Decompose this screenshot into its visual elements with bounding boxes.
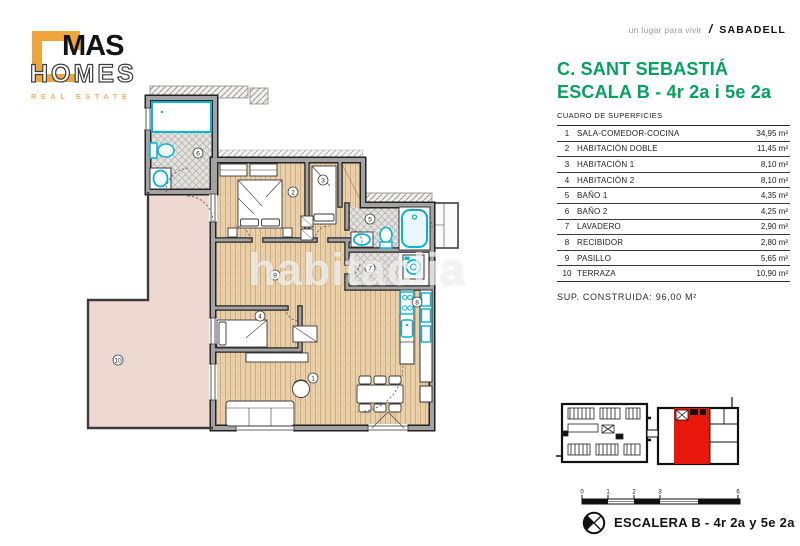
row-area: 11,45 m² <box>757 144 790 153</box>
svg-text:8: 8 <box>415 299 419 306</box>
row-name: HABITACIÓN 2 <box>577 176 761 185</box>
room-number-2: 2 <box>288 187 298 197</box>
row-name: HABITACIÓN DOBLE <box>577 144 757 153</box>
table-row: 8RECIBIDOR2,80 m² <box>557 235 790 251</box>
terrace-floor <box>88 192 213 428</box>
svg-text:3: 3 <box>321 177 325 184</box>
table-row: 9PASILLO5,65 m² <box>557 251 790 267</box>
svg-text:1: 1 <box>311 375 315 382</box>
row-area: 5,65 m² <box>761 254 790 263</box>
shower-tray <box>152 102 211 132</box>
washing-machine <box>403 255 424 279</box>
svg-text:4: 4 <box>258 313 262 320</box>
highlighted-unit <box>674 408 710 464</box>
table-row: 4HABITACIÓN 28,10 m² <box>557 173 790 189</box>
row-num: 6 <box>557 207 577 216</box>
row-num: 1 <box>557 129 577 138</box>
row-name: LAVADERO <box>577 222 761 231</box>
scale-bar: 0 1 2 3 6 <box>580 487 746 507</box>
compass-icon <box>581 510 607 536</box>
row-name: TERRAZA <box>577 269 756 278</box>
row-area: 8,10 m² <box>761 160 790 169</box>
row-area: 10,90 m² <box>756 269 790 278</box>
bathtub <box>399 207 430 250</box>
room-number-4: 4 <box>255 311 265 321</box>
row-area: 34,95 m² <box>756 129 790 138</box>
toilet-bath1 <box>380 228 392 249</box>
svg-text:2: 2 <box>632 490 636 496</box>
room-number-3: 3 <box>318 175 328 185</box>
room-number-10: 10 <box>113 355 123 365</box>
built-surface-total: SUP. CONSTRUIDA: 96,00 M² <box>557 292 790 302</box>
room-number-8: 8 <box>412 297 422 307</box>
row-area: 4,35 m² <box>761 191 790 200</box>
room-number-1: 1 <box>308 373 318 383</box>
room-number-7: 7 <box>365 263 375 273</box>
row-area: 2,90 m² <box>761 222 790 231</box>
row-num: 8 <box>557 238 577 247</box>
table-row: 7LAVADERO2,90 m² <box>557 220 790 236</box>
row-name: SALA-COMEDOR-COCINA <box>577 129 756 138</box>
row-name: BAÑO 1 <box>577 191 761 200</box>
svg-text:5: 5 <box>368 216 372 223</box>
surfaces-table: 1SALA-COMEDOR-COCINA34,95 m² 2HABITACIÓN… <box>557 125 790 282</box>
table-row: 10TERRAZA10,90 m² <box>557 266 790 281</box>
row-num: 9 <box>557 254 577 263</box>
row-area: 2,80 m² <box>761 238 790 247</box>
row-name: HABITACIÓN 1 <box>577 160 761 169</box>
row-num: 10 <box>557 269 577 278</box>
surfaces-table-heading: CUADRO DE SUPERFICIES <box>557 111 790 120</box>
svg-text:6: 6 <box>736 490 740 496</box>
svg-text:9: 9 <box>273 272 277 279</box>
svg-text:6: 6 <box>196 150 200 157</box>
row-num: 3 <box>557 160 577 169</box>
table-row: 2HABITACIÓN DOBLE11,45 m² <box>557 142 790 158</box>
sink-bath1 <box>351 232 373 247</box>
row-name: RECIBIDOR <box>577 238 761 247</box>
header-separator: / <box>709 22 712 36</box>
row-num: 2 <box>557 144 577 153</box>
toilet-bath2 <box>150 143 174 158</box>
staircase-label: ESCALERA B - 4r 2a y 5e 2a <box>614 515 795 530</box>
info-panel: C. SANT SEBASTIÁ ESCALA B - 4r 2a i 5e 2… <box>557 58 790 302</box>
row-area: 4,25 m² <box>761 207 790 216</box>
sink-bath2 <box>150 168 171 189</box>
svg-text:3: 3 <box>658 490 662 496</box>
header: un lugar para vivir / SABADELL <box>629 22 786 36</box>
header-location: SABADELL <box>719 24 786 36</box>
table-row: 3HABITACIÓN 18,10 m² <box>557 157 790 173</box>
svg-text:7: 7 <box>368 265 372 272</box>
table-row: 1SALA-COMEDOR-COCINA34,95 m² <box>557 126 790 142</box>
scale-labels: 0 1 2 3 6 <box>580 490 740 496</box>
svg-text:0: 0 <box>580 490 584 496</box>
table-row: 6BAÑO 24,25 m² <box>557 204 790 220</box>
header-slogan: un lugar para vivir <box>629 25 702 35</box>
row-name: BAÑO 2 <box>577 207 761 216</box>
street-title: C. SANT SEBASTIÁ <box>557 58 790 81</box>
brand-name-top: MAS <box>62 30 123 63</box>
unit-title: ESCALA B - 4r 2a i 5e 2a <box>557 81 790 104</box>
row-num: 4 <box>557 176 577 185</box>
site-plan-minimap <box>556 394 752 480</box>
row-num: 5 <box>557 191 577 200</box>
svg-text:10: 10 <box>114 357 122 364</box>
svg-text:1: 1 <box>606 490 610 496</box>
floorplan-drawing: 1 2 3 4 5 6 7 8 9 10 <box>70 80 480 470</box>
svg-text:2: 2 <box>291 189 295 196</box>
stair-landing <box>432 203 458 248</box>
room-number-5: 5 <box>365 214 375 224</box>
row-area: 8,10 m² <box>761 176 790 185</box>
table-row: 5BAÑO 14,35 m² <box>557 188 790 204</box>
room-number-9: 9 <box>270 270 280 280</box>
row-name: PASILLO <box>577 254 761 263</box>
row-num: 7 <box>557 222 577 231</box>
room-number-6: 6 <box>193 148 203 158</box>
